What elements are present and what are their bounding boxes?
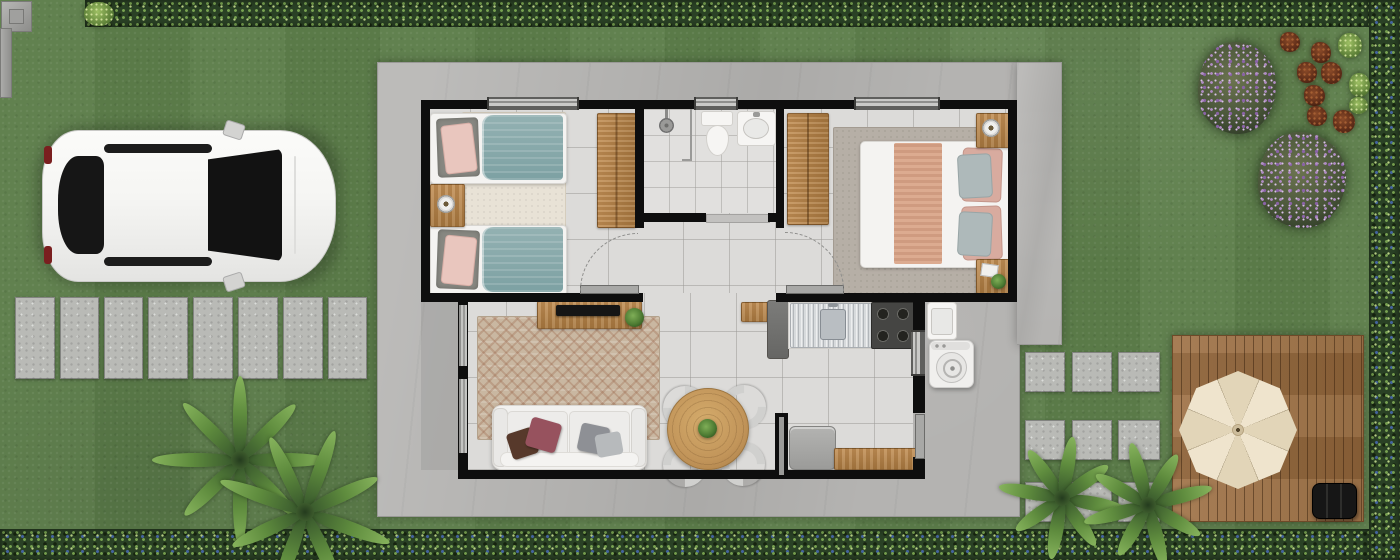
- potted-plant: [991, 274, 1006, 289]
- door-leaf-kitchen-side: [915, 414, 925, 459]
- hedge-top: [85, 0, 1369, 27]
- tv: [556, 305, 620, 316]
- washer-control-panel: [931, 342, 970, 350]
- wall-south-bedroom1: [421, 293, 643, 302]
- bbq-grill: [1312, 483, 1357, 519]
- hedge-right: [1369, 0, 1400, 560]
- throw-pillow: [594, 431, 624, 458]
- wall-east-bedroom2: [1008, 100, 1017, 302]
- car-taillight: [44, 146, 52, 164]
- boundary-wall: [0, 28, 12, 98]
- paver: [193, 297, 233, 379]
- car-rear-window: [58, 156, 104, 254]
- single-bed: [430, 113, 565, 182]
- palm-core: [231, 451, 249, 469]
- wall-bathroom-bedroom2: [776, 109, 784, 228]
- pillow: [440, 122, 478, 175]
- laundry-tub-basin: [931, 308, 953, 335]
- house-slab-extension: [1017, 62, 1062, 345]
- potted-plant: [625, 308, 644, 327]
- palm-core: [1054, 490, 1070, 506]
- kitchen-counter-wood: [834, 448, 917, 470]
- red-shrub: [1304, 85, 1325, 106]
- red-shrub: [1333, 110, 1355, 133]
- boundary-pillar-cap: [9, 9, 24, 24]
- green-shrub: [1349, 73, 1370, 97]
- red-shrub: [1297, 62, 1317, 83]
- bed-duvet: [482, 227, 563, 292]
- palm-frond: [152, 453, 240, 467]
- bed-duvet: [482, 115, 563, 180]
- table-lamp: [437, 195, 455, 213]
- car-taillight: [44, 246, 52, 264]
- car-windshield: [208, 148, 282, 262]
- wall-bedroom1-bathroom: [635, 109, 644, 228]
- paver: [328, 297, 367, 379]
- paver: [60, 297, 99, 379]
- palm-core: [296, 503, 314, 521]
- single-bed: [430, 225, 565, 294]
- red-shrub: [1307, 106, 1327, 126]
- hedge-leaf-plant: [84, 2, 114, 26]
- window: [694, 97, 738, 110]
- stepping-stone: [1072, 420, 1112, 460]
- wall-bathroom-south: [643, 213, 706, 222]
- paver: [15, 297, 55, 379]
- sliding-door: [459, 305, 467, 453]
- pillow: [957, 153, 993, 199]
- centerpiece-plant: [698, 419, 717, 438]
- wardrobe: [787, 113, 829, 225]
- paver: [283, 297, 323, 379]
- site-plan: [0, 0, 1400, 560]
- double-bed: [860, 141, 1008, 266]
- shower-glass: [690, 109, 692, 161]
- sliding-door-post: [458, 366, 468, 379]
- flower-bush: [1198, 42, 1276, 134]
- wall-east-kitchen: [913, 302, 925, 330]
- paver: [104, 297, 143, 379]
- side-patio: [421, 302, 458, 470]
- wall-south-main: [460, 470, 925, 479]
- shower-head-icon: [659, 118, 674, 133]
- wall-west-bedroom1: [421, 100, 430, 302]
- sideboard: [741, 302, 770, 322]
- flower-bush: [1258, 132, 1346, 228]
- red-shrub: [1280, 32, 1300, 52]
- window: [487, 97, 579, 110]
- paver: [148, 297, 188, 379]
- table-lamp: [982, 119, 1000, 137]
- paver: [238, 297, 278, 379]
- kitchen-window: [911, 330, 925, 376]
- shower-glass: [682, 159, 692, 161]
- bed-runner: [894, 143, 942, 264]
- sideboard-cabinet: [767, 300, 789, 359]
- toilet-tank: [701, 111, 733, 126]
- car: [42, 122, 334, 288]
- stepping-stone: [1025, 352, 1065, 392]
- wardrobe: [597, 113, 636, 228]
- umbrella-pole-icon: [1232, 424, 1244, 436]
- kitchen-sink-basin: [820, 309, 846, 340]
- window: [854, 97, 940, 110]
- car-hood-line: [294, 156, 296, 254]
- green-shrub: [1349, 97, 1368, 114]
- stepping-stone: [1118, 352, 1160, 392]
- washer-lid-ring: [943, 359, 962, 378]
- sofa: [492, 405, 645, 468]
- red-shrub: [1311, 42, 1331, 63]
- stove: [871, 302, 915, 349]
- wall-east-kitchen: [913, 372, 925, 413]
- stepping-stone: [1072, 352, 1112, 392]
- car-side-window: [104, 257, 212, 266]
- green-shrub: [1338, 33, 1362, 58]
- pillow: [441, 234, 478, 286]
- pillow: [957, 211, 993, 257]
- car-side-window: [104, 144, 212, 153]
- bathroom-threshold: [706, 214, 770, 223]
- faucet-icon: [753, 112, 760, 117]
- faucet-icon: [828, 303, 838, 307]
- wall-divider-core: [779, 417, 784, 475]
- wall-south-bedroom2: [776, 293, 1017, 302]
- red-shrub: [1321, 62, 1342, 84]
- palm-core: [1140, 497, 1156, 513]
- sink-basin: [743, 118, 769, 139]
- refrigerator: [789, 426, 836, 470]
